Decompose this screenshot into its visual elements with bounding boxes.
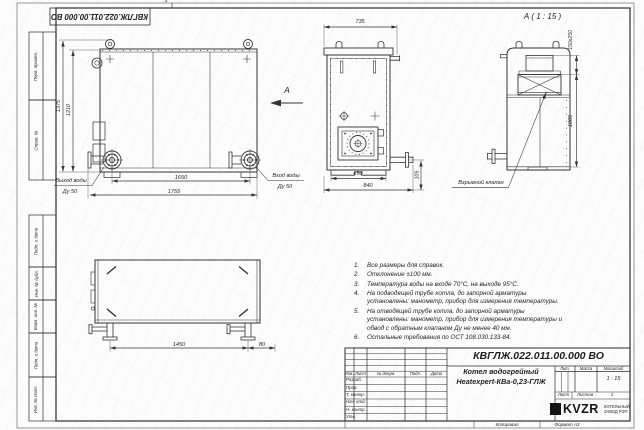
dim-plan-offset: 80 [248, 342, 276, 348]
kopiroval-label: Копировал [474, 422, 540, 427]
outlet-dn: Ду 50 [55, 189, 85, 195]
listov-value: 1 [600, 393, 624, 398]
stamp-sprav-no: Справ. № [29, 100, 43, 180]
stamp-podp-data-1: Подп. и дата [29, 215, 43, 267]
row-tkontr: Т. контр. [346, 393, 365, 398]
flipped-doc-number: КВГЛЖ.022.011.00.000 ВО [51, 12, 148, 21]
dim-side-depth-body: 650 [328, 171, 388, 177]
col-podp: Подп. [405, 372, 426, 377]
dim-front-width-flanges: 1650 [151, 175, 211, 181]
org-name-line1: КОТЕЛЬНЫЙ [604, 404, 630, 409]
row-prov: Пров. [346, 386, 358, 391]
kvzr-logo-icon [550, 403, 561, 416]
notes-block: 1.Все размеры для справок. 2.Отклонение … [352, 262, 564, 343]
inlet-dn: Ду 50 [270, 184, 300, 190]
format-label: Формат А3 [540, 422, 594, 427]
note-item: 4.На подводящей трубе котла, до запорной… [352, 290, 564, 307]
dim-side-depth-top: 735 [330, 19, 390, 25]
dim-plan-span: 1450 [149, 342, 209, 348]
inlet-label: Вход воды [267, 173, 305, 179]
outlet-label: Выход воды [52, 178, 90, 184]
drawing-sheet: 2 КВГЛЖ.022.011.00.000 ВО Перв. примен. … [0, 0, 644, 430]
dim-front-width-overall: 1755 [144, 189, 204, 195]
note-item: 6.Остальные требования по ОСТ 108.030.13… [352, 334, 564, 342]
col-list: Лист [354, 372, 367, 377]
product-name-line2: Heatexpert-КВа-0,23-ГЛЖ [447, 378, 555, 386]
detail-title: А ( 1 : 15 ) [500, 13, 585, 22]
lit-header: Лит. [555, 367, 575, 372]
list-label: Лист [555, 393, 572, 398]
col-doc: № докум. [367, 372, 405, 377]
stamp-inv-podl: Инв. № подл. [29, 377, 43, 421]
dim-side-pipe-height: 105 [411, 161, 423, 189]
col-data: Дата [426, 372, 447, 377]
explosion-valve-label: Взрывной клапан [452, 180, 510, 186]
dim-front-height-body: 1210 [63, 90, 75, 130]
zone-mark: 2 [165, 0, 168, 5]
title-block-doc-number: КВГЛЖ.022.011.00.000 ВО [447, 351, 630, 363]
note-item: 5.На отводящей трубе котла, до запорной … [352, 308, 564, 333]
detail-view-dimensions [452, 56, 580, 188]
masshtab-header: Масштаб [597, 367, 630, 372]
note-item: 1.Все размеры для справок. [352, 262, 564, 270]
drawing-linework [0, 0, 644, 430]
note-item: 3.Температура воды на входе 70°С, на вых… [352, 281, 564, 289]
row-nkontr: Н. контр. [346, 408, 366, 413]
side-view [324, 42, 413, 176]
massa-header: Масса [575, 367, 597, 372]
row-nachotd: Нач. отд. [346, 400, 366, 405]
stamp-inv-dubl: Инв. № дубл. [29, 267, 43, 300]
dim-detail-duct: 150x250 [563, 22, 579, 58]
kvzr-logo-text: KVZR [563, 402, 599, 416]
front-view [88, 40, 261, 178]
stamp-vzam-inv: Взам. инв. № [29, 300, 43, 333]
scale-value: 1 : 15 [597, 376, 630, 382]
note-item: 2.Отклонение ±100 мм. [352, 271, 564, 279]
dim-side-depth-overall: 840 [338, 183, 398, 189]
stamp-perv-primen: Перв. примен. [29, 32, 43, 100]
dim-detail-height: 1005 [563, 103, 579, 139]
col-izm: Изм. [344, 372, 354, 377]
row-utv: Утв. [346, 415, 356, 420]
flipped-doc-number-box: КВГЛЖ.022.011.00.000 ВО [50, 8, 150, 25]
side-view-dimensions [324, 25, 424, 194]
detail-view [488, 42, 571, 171]
stamp-podp-data-2: Подп. и дата [29, 333, 43, 377]
org-name-line2: ЗАВОД РЭП [604, 409, 627, 414]
row-razrab: Разраб. [346, 378, 362, 383]
product-name-line1: Котел водогрейный [447, 368, 555, 376]
plan-view [89, 260, 260, 340]
sheet-frame [17, 3, 634, 428]
listov-label: Листов [574, 393, 596, 398]
view-arrow-mark: А [281, 86, 293, 95]
